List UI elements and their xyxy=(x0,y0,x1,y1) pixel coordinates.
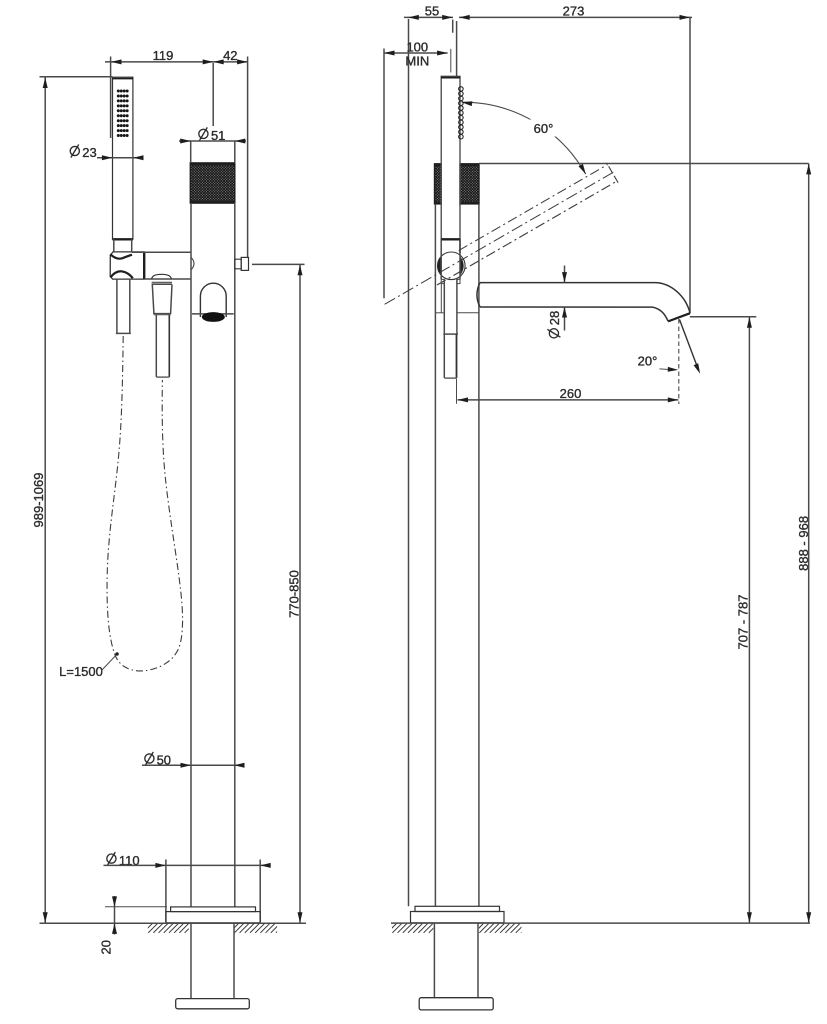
svg-text:L=1500: L=1500 xyxy=(59,664,103,679)
svg-text:20: 20 xyxy=(99,940,114,954)
svg-text:119: 119 xyxy=(153,48,174,63)
svg-text:23: 23 xyxy=(82,145,96,160)
svg-text:888 - 968: 888 - 968 xyxy=(796,516,811,571)
svg-text:707 - 787: 707 - 787 xyxy=(736,595,751,650)
svg-text:989-1069: 989-1069 xyxy=(31,473,46,528)
svg-text:20°: 20° xyxy=(638,353,658,368)
svg-text:770-850: 770-850 xyxy=(287,570,302,618)
svg-text:42: 42 xyxy=(223,48,237,63)
svg-text:273: 273 xyxy=(563,3,585,18)
svg-text:260: 260 xyxy=(560,386,582,401)
svg-text:55: 55 xyxy=(425,3,439,18)
svg-text:28: 28 xyxy=(547,311,562,325)
svg-text:60°: 60° xyxy=(534,121,554,136)
svg-text:MIN: MIN xyxy=(405,53,429,68)
svg-text:100: 100 xyxy=(406,39,428,54)
